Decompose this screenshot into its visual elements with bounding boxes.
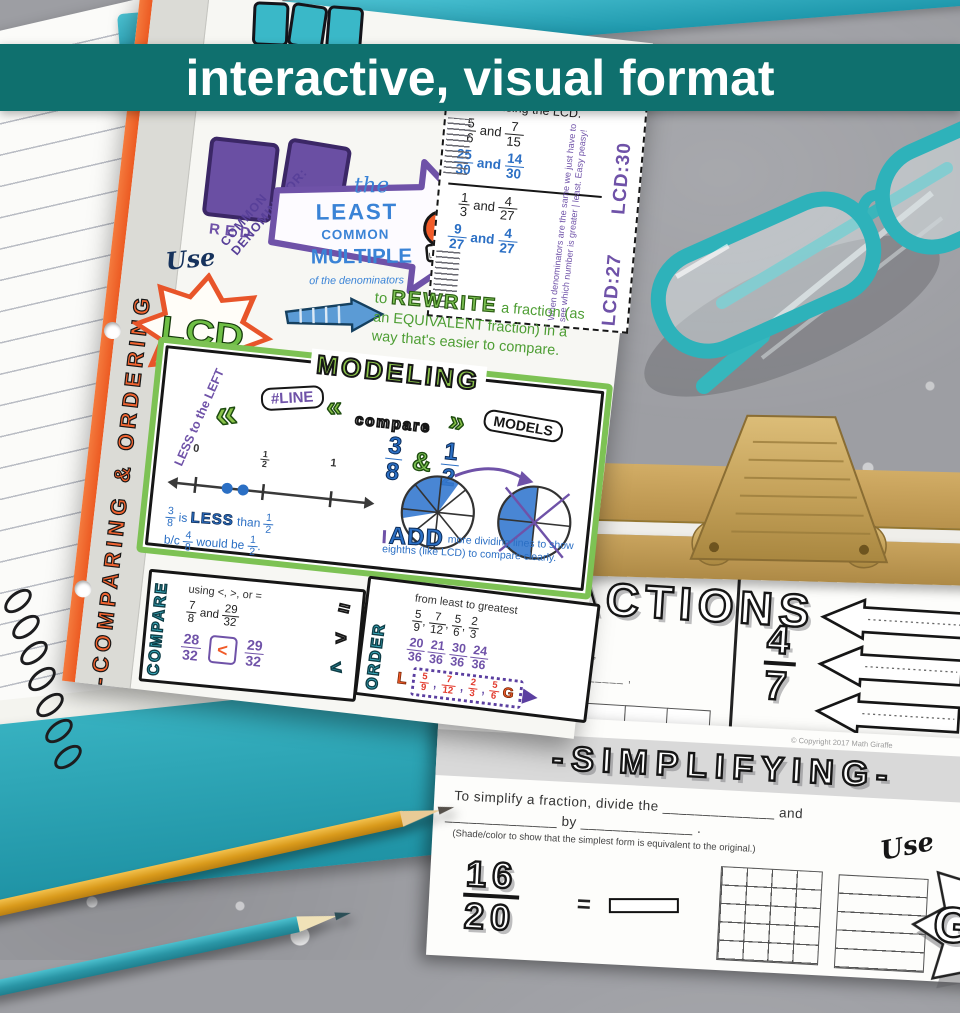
promo-banner: interactive, visual format (0, 44, 960, 111)
clipboard-clip (638, 403, 941, 583)
tick-label-0: 0 (193, 443, 200, 456)
blank-answer-bar (609, 898, 679, 913)
simplifying-worksheet: © Copyright 2017 Math Giraffe -SIMPLIFYI… (426, 711, 960, 985)
chevron-left-icon: « (326, 391, 343, 424)
fraction: 427 (497, 226, 519, 257)
equals-sign: = (576, 891, 591, 920)
least-letter: L (396, 670, 408, 689)
less-than-answer: < (207, 635, 238, 666)
fraction-four-sevenths: 47 (761, 619, 799, 709)
scribble-lines (443, 117, 472, 175)
arrow-word-least: LEAST (316, 199, 398, 225)
greater-than-doodle: > (335, 628, 346, 650)
tick-label-1: 1 (330, 457, 337, 470)
arrow-head-icon: ▶ (521, 682, 539, 709)
number-line-point (221, 482, 233, 494)
order-label: ORDER (364, 586, 395, 691)
number-line-point (237, 484, 249, 496)
banner-text: interactive, visual format (185, 49, 774, 107)
arrow-word-the: the (354, 173, 389, 198)
title-partial-letter (252, 1, 290, 47)
less-than-doodle: < (329, 657, 343, 680)
number-line-tag: #LINE (260, 385, 324, 411)
fraction-sixteen-twentieths: 1620 (461, 855, 521, 937)
order-practice-box: ORDER from least to greatest 59, 712, 56… (354, 576, 601, 724)
pencil-wood-tip (296, 908, 338, 932)
compare-given: 78 and 2932 (185, 599, 240, 629)
arrow-word-multiple: MULTIPLE (311, 245, 412, 269)
compare-label: COMPARE (145, 578, 172, 676)
modeling-box: MODELING LESS to the LEFT « #LINE « comp… (136, 336, 613, 600)
compare-answer: 2832 < 2932 (180, 631, 266, 669)
fraction: 1430 (503, 152, 525, 183)
teal-eyeglasses (612, 98, 960, 398)
teal-pencil (0, 905, 353, 999)
greatest-letter: G (502, 684, 515, 701)
fraction: 13 (457, 190, 471, 219)
pencil-lead-tip (438, 803, 455, 814)
order-answer-arrow: 59, 712, 23, 56 G (410, 667, 523, 709)
shading-grid-model (716, 866, 823, 965)
compare-practice-box: COMPARE using <, >, or = 78 and 2932 283… (138, 569, 366, 702)
order-answer: L 59, 712, 23, 56 G ▶ (395, 665, 539, 711)
gcf-label: GCF (913, 894, 960, 960)
worksheet-note: (Shade/color to show that the simplest f… (452, 828, 756, 855)
fraction: 427 (497, 194, 518, 224)
equals-doodle: = (336, 598, 352, 622)
pencil-lead-tip (334, 909, 351, 920)
tick-label-half: 12 (259, 450, 270, 471)
arrow-word-common: COMMON (321, 227, 389, 243)
fraction: 715 (504, 119, 525, 149)
arrow-word-denominators: of the denominators (309, 274, 404, 287)
left-arrows-doodle (809, 591, 960, 750)
